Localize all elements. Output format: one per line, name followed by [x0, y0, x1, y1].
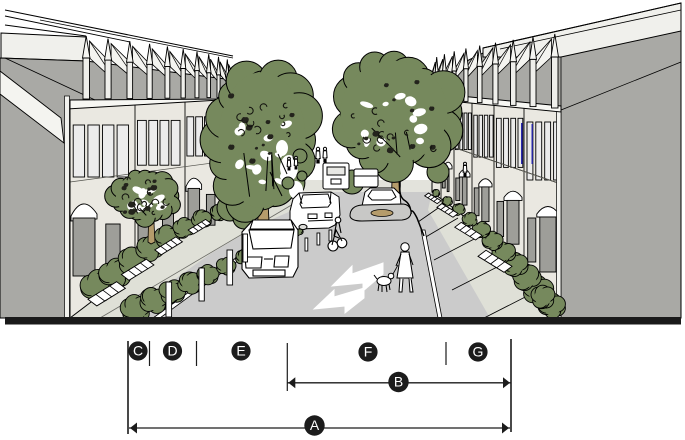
svg-text:A: A — [310, 417, 320, 433]
svg-text:F: F — [364, 344, 373, 360]
svg-text:D: D — [167, 343, 177, 359]
svg-text:G: G — [473, 344, 484, 360]
svg-text:E: E — [236, 343, 245, 359]
svg-text:B: B — [394, 374, 403, 390]
svg-text:C: C — [133, 343, 143, 359]
